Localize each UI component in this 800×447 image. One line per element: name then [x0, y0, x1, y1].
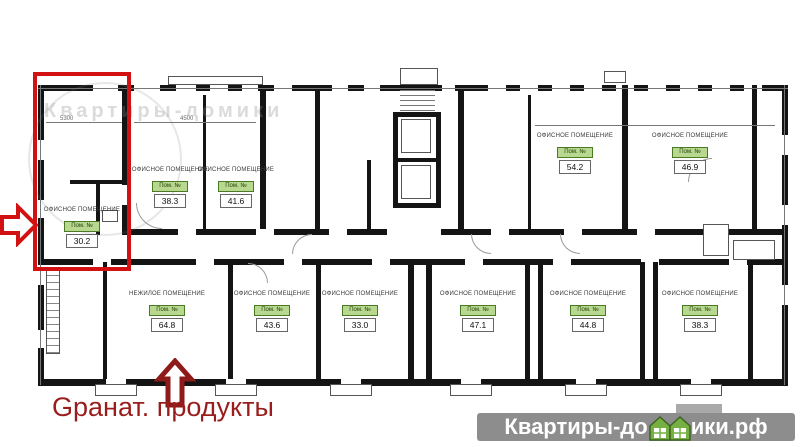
- wall-segment: [393, 112, 441, 117]
- room-title: ОФИСНОЕ ПОМЕЩЕНИЕ: [186, 167, 286, 174]
- room-label-41-6: ОФИСНОЕ ПОМЕЩЕНИЕ Пом. № 41.6: [186, 167, 286, 208]
- room-title: ОФИСНОЕ ПОМЕЩЕНИЕ: [538, 291, 638, 298]
- wall-segment: [782, 85, 788, 135]
- room-title: ОФИСНОЕ ПОМЕЩЕНИЕ: [222, 291, 322, 298]
- floor-plan-image: Квартиры-домики 5300 4500 ОФИСНОЕ ПОМЕЩЕ…: [0, 0, 800, 447]
- footer-watermark-tab: [676, 404, 722, 413]
- room-number-badge: Пом. №: [460, 305, 496, 316]
- wall-segment: [103, 262, 107, 379]
- plan-line: [784, 85, 785, 385]
- room-area: 47.1: [462, 318, 494, 332]
- store-annotation-label: Gранат. продукты: [52, 392, 274, 423]
- door-arc: [248, 263, 268, 283]
- room-label-44-8: ОФИСНОЕ ПОМЕЩЕНИЕ Пом. № 44.8: [538, 291, 638, 332]
- room-number-badge: Пом. №: [557, 147, 593, 158]
- wall-segment: [782, 305, 788, 386]
- room-area: 41.6: [220, 194, 252, 208]
- plan-line: [400, 90, 435, 91]
- dimension-label: 4500: [178, 116, 195, 122]
- room-area: 64.8: [151, 318, 183, 332]
- room-label-46-9: ОФИСНОЕ ПОМЕЩЕНИЕ Пом. № 46.9: [640, 133, 740, 174]
- plan-line: [535, 125, 775, 126]
- wall-segment: [481, 379, 576, 386]
- plan-box: [330, 384, 372, 396]
- room-number-badge: Пом. №: [218, 181, 254, 192]
- room-label-64-8: НЕЖИЛОЕ ПОМЕЩЕНИЕ Пом. № 64.8: [117, 291, 217, 332]
- wall-segment: [128, 229, 178, 235]
- room-label-47-1: ОФИСНОЕ ПОМЕЩЕНИЕ Пом. № 47.1: [428, 291, 528, 332]
- highlight-rectangle: [33, 72, 131, 271]
- left-arrow-icon: [0, 203, 40, 247]
- room-area: 54.2: [559, 160, 591, 174]
- site-watermark-suffix: ики.рф: [691, 413, 768, 441]
- wall-segment: [393, 158, 441, 162]
- room-number-badge: Пом. №: [254, 305, 290, 316]
- wall-segment: [393, 203, 441, 208]
- room-label-43-6: ОФИСНОЕ ПОМЕЩЕНИЕ Пом. № 43.6: [222, 291, 322, 332]
- wall-segment: [582, 229, 637, 235]
- wall-segment: [315, 85, 320, 229]
- stair-hatch: [46, 268, 60, 354]
- room-title: ОФИСНОЕ ПОМЕЩЕНИЕ: [428, 291, 528, 298]
- wall-segment: [38, 285, 44, 330]
- plan-line: [400, 110, 435, 111]
- door-arc: [471, 234, 491, 254]
- room-number-badge: Пом. №: [149, 305, 185, 316]
- door-arc: [292, 234, 312, 254]
- room-area: 43.6: [256, 318, 288, 332]
- wall-segment: [246, 379, 341, 386]
- wall-segment: [596, 379, 691, 386]
- room-label-33-0: ОФИСНОЕ ПОМЕЩЕНИЕ Пом. № 33.0: [310, 291, 410, 332]
- wall-segment: [752, 85, 757, 229]
- room-number-badge: Пом. №: [672, 147, 708, 158]
- wall-segment: [196, 229, 256, 235]
- plan-box: [168, 76, 263, 85]
- room-title: ОФИСНОЕ ПОМЕЩЕНИЕ: [310, 291, 410, 298]
- wall-segment: [640, 262, 645, 379]
- room-number-badge: Пом. №: [570, 305, 606, 316]
- wall-segment: [458, 85, 464, 229]
- plan-box: [680, 384, 722, 396]
- wall-segment: [782, 155, 788, 205]
- room-label-54-2: ОФИСНОЕ ПОМЕЩЕНИЕ Пом. № 54.2: [525, 133, 625, 174]
- plan-box: [400, 68, 438, 85]
- site-watermark-prefix: Квартиры-до: [504, 413, 647, 441]
- wall-segment: [728, 229, 788, 235]
- wall-segment: [655, 229, 710, 235]
- door-arc: [560, 234, 580, 254]
- wall-segment: [367, 160, 371, 230]
- room-area: 38.3: [154, 194, 186, 208]
- room-number-badge: Пом. №: [342, 305, 378, 316]
- plan-box: [733, 240, 775, 260]
- wall-segment: [509, 229, 564, 235]
- room-area: 38.3: [684, 318, 716, 332]
- room-title: НЕЖИЛОЕ ПОМЕЩЕНИЕ: [117, 291, 217, 298]
- room-number-badge: Пом. №: [152, 181, 188, 192]
- plan-box: [565, 384, 607, 396]
- green-houses-icon: [648, 414, 692, 441]
- room-area: 46.9: [674, 160, 706, 174]
- plan-line: [400, 95, 435, 96]
- room-title: ОФИСНОЕ ПОМЕЩЕНИЕ: [525, 133, 625, 140]
- plan-box: [401, 165, 431, 199]
- wall-segment: [659, 259, 729, 265]
- plan-box: [401, 119, 431, 153]
- room-title: ОФИСНОЕ ПОМЕЩЕНИЕ: [650, 291, 750, 298]
- wall-segment: [711, 379, 788, 386]
- room-title: ОФИСНОЕ ПОМЕЩЕНИЕ: [640, 133, 740, 140]
- plan-line: [400, 100, 435, 101]
- plan-box: [604, 71, 626, 83]
- room-area: 44.8: [572, 318, 604, 332]
- wall-segment: [571, 259, 641, 265]
- wall-segment: [361, 379, 461, 386]
- site-watermark: Квартиры-до ики.рф: [477, 413, 795, 441]
- plan-box: [703, 224, 729, 256]
- plan-line: [38, 88, 788, 89]
- plan-line: [400, 105, 435, 106]
- room-area: 33.0: [344, 318, 376, 332]
- wall-segment: [302, 259, 372, 265]
- plan-box: [450, 384, 492, 396]
- room-number-badge: Пом. №: [682, 305, 718, 316]
- wall-segment: [274, 229, 329, 235]
- room-label-38-3-bottom: ОФИСНОЕ ПОМЕЩЕНИЕ Пом. № 38.3: [650, 291, 750, 332]
